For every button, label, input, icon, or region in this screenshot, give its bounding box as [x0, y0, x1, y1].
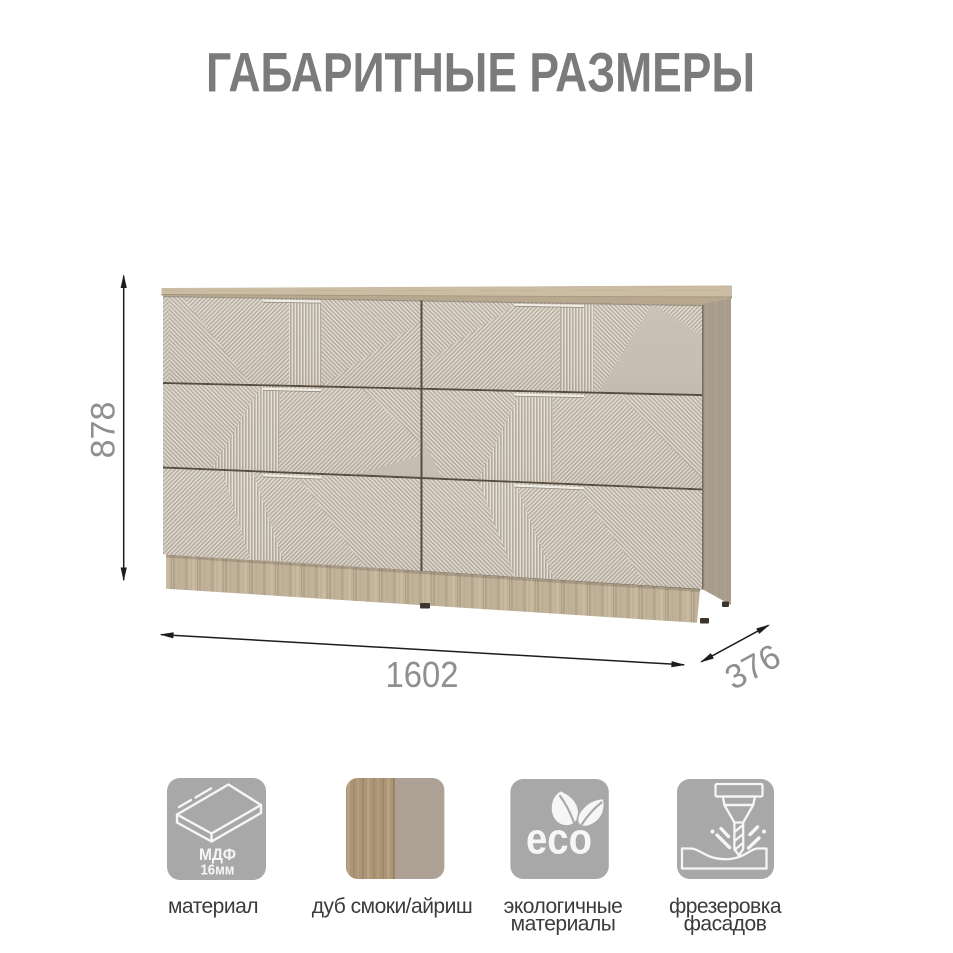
svg-text:ГАБАРИТНЫЕ РАЗМЕРЫ: ГАБАРИТНЫЕ РАЗМЕРЫ [206, 41, 755, 104]
svg-text:878: 878 [85, 402, 123, 459]
svg-text:фасадов: фасадов [684, 913, 767, 936]
svg-text:1602: 1602 [386, 654, 459, 695]
svg-text:дуб смоки/айриш: дуб смоки/айриш [312, 895, 472, 918]
svg-text:16мм: 16мм [201, 862, 235, 879]
svg-text:материал: материал [168, 895, 258, 918]
svg-text:материалы: материалы [511, 913, 616, 936]
